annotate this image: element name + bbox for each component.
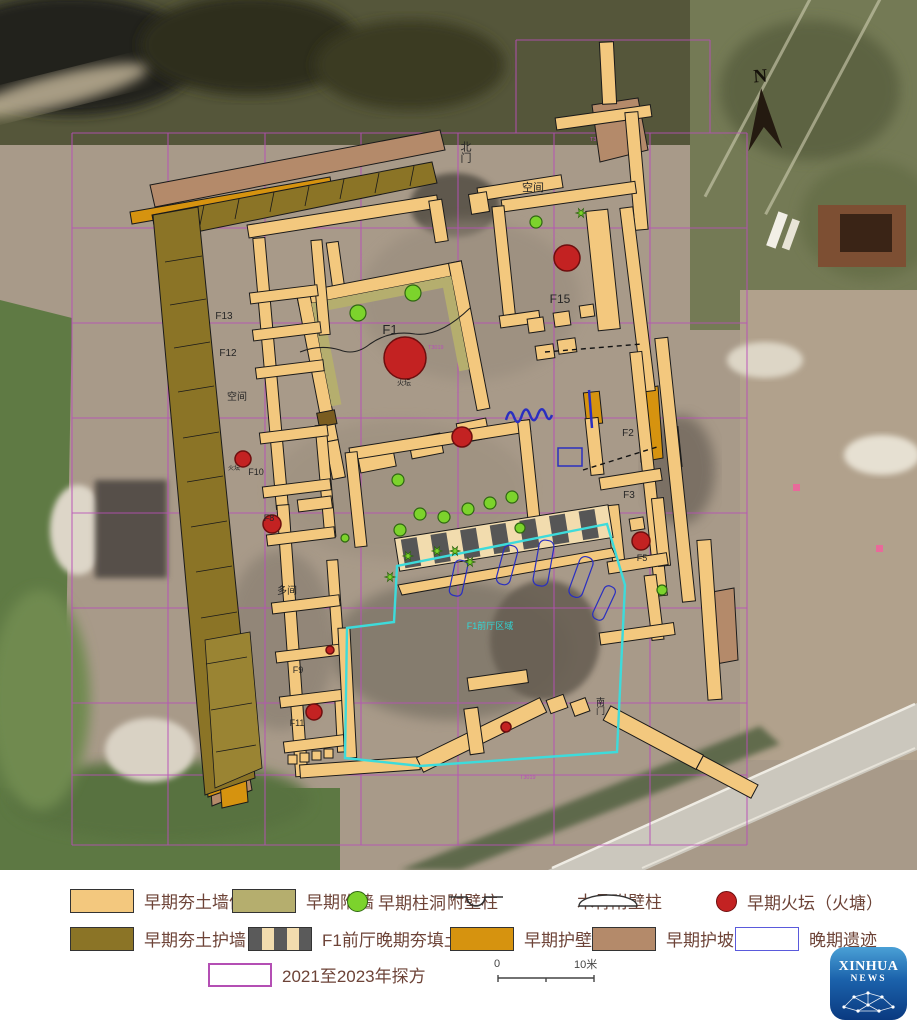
legend-label: 早期柱洞: [378, 889, 446, 914]
legend-item-guard-wall: 早期夯土护墙: [70, 926, 246, 951]
swatch-guard-wall: [70, 927, 134, 951]
swatch-grid-square: [208, 963, 272, 987]
swatch-guard-face: [450, 927, 514, 951]
label-f8: F8: [264, 513, 275, 523]
xinhua-news-logo: XINHUA NEWS: [830, 947, 907, 1020]
label-f12: F12: [219, 348, 237, 359]
legend-item-guard-face: 早期护壁: [450, 926, 592, 951]
label-front-hall: F1前厅区域: [467, 620, 514, 631]
label-f10: F10: [248, 467, 264, 477]
legend-item-wall: 早期夯土墙体: [70, 888, 246, 913]
swatch-early-wall: [70, 889, 134, 913]
label-f9: F9: [293, 665, 304, 675]
label-f13: F13: [215, 311, 233, 322]
label-f1: F1: [382, 322, 397, 337]
wood-pillar-icon: [577, 888, 639, 914]
legend-label: 2021至2023年探方: [282, 962, 426, 987]
swatch-rammed-fill: [248, 927, 312, 951]
legend-item-fire-altar: 早期火坛（火塘）: [716, 889, 883, 914]
label-f3: F3: [623, 490, 635, 501]
legend-item-grid-square: 2021至2023年探方: [208, 962, 426, 987]
legend-item-wood-pillar: 木骨附壁柱: [577, 888, 662, 913]
scale-end: 10米: [574, 956, 597, 972]
label-space-mid: 多间: [277, 584, 297, 597]
label-fire-altar-f1: 火坛: [397, 378, 411, 387]
legend-label: 早期护壁: [524, 926, 592, 951]
label-f2: F2: [622, 428, 634, 439]
legend-item-wall-pillar: 附壁柱: [447, 888, 498, 913]
site-plan-map: T3028 T3019 T3019: [0, 0, 917, 870]
label-fire-altar-f10: 火坛: [228, 464, 240, 472]
north-arrow-label: N: [753, 66, 768, 88]
scale-bar-line: [494, 972, 604, 986]
legend-label: 早期夯土墙体: [144, 888, 246, 913]
label-space-top: 空间: [522, 180, 544, 194]
legend-label: 早期夯土护墙: [144, 926, 246, 951]
legend-item-rammed-fill: F1前厅晚期夯填土: [248, 926, 461, 951]
label-space-left: 空间: [227, 390, 247, 403]
legend-label: F1前厅晚期夯填土: [322, 926, 461, 951]
label-south-gate: 南门: [595, 696, 605, 716]
grid-label: T3019: [520, 775, 536, 781]
logo-network-icon: [830, 985, 907, 1020]
news-graphic: T3028 T3019 T3019: [0, 0, 917, 1024]
posthole-swatch-icon: [347, 891, 368, 912]
swatch-attached-wall: [232, 889, 296, 913]
legend-label: 早期护坡: [666, 926, 734, 951]
legend-label: 早期火坛（火塘）: [747, 889, 883, 914]
swatch-slope: [592, 927, 656, 951]
label-f11: F11: [290, 718, 305, 728]
legend-item-posthole: 早期柱洞: [347, 889, 446, 914]
legend-item-slope: 早期护坡: [592, 926, 734, 951]
label-f5: F5: [637, 553, 648, 563]
label-north-gate: 北门: [459, 141, 472, 164]
label-f15: F15: [550, 292, 571, 306]
wall-pillar-icon: [447, 888, 505, 914]
grid-label: T3019: [428, 345, 444, 351]
scale-start: 0: [494, 958, 500, 970]
fire-altar-swatch-icon: [716, 891, 737, 912]
swatch-late-remains: [735, 927, 799, 951]
logo-text-xinhua: XINHUA: [839, 959, 899, 974]
